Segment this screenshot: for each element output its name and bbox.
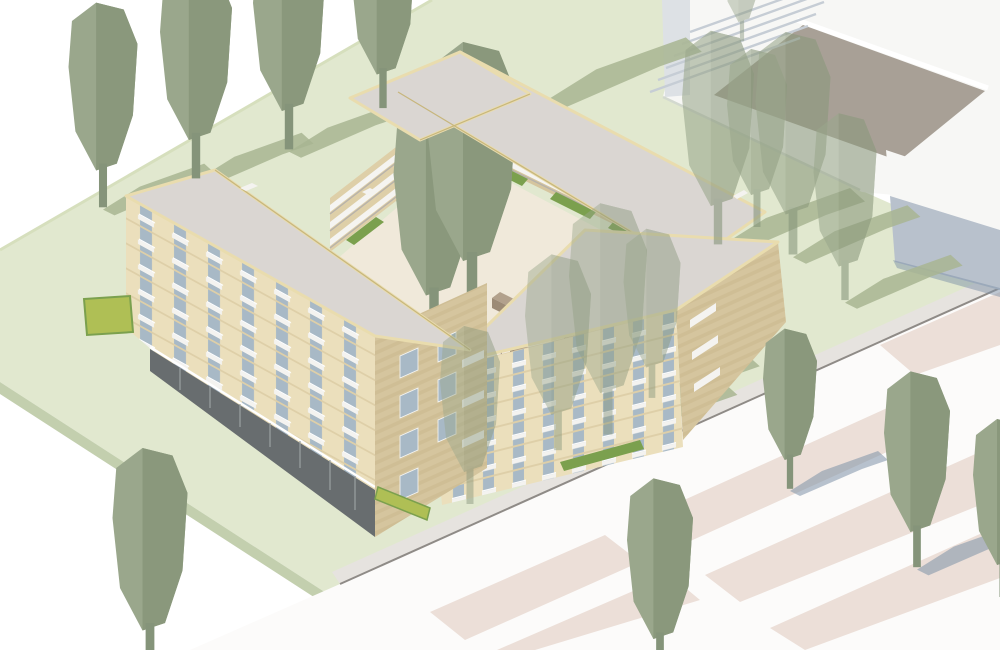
axonometric-rendering (0, 0, 1000, 650)
base-planter-west (84, 296, 133, 335)
rendering-canvas (0, 0, 1000, 650)
